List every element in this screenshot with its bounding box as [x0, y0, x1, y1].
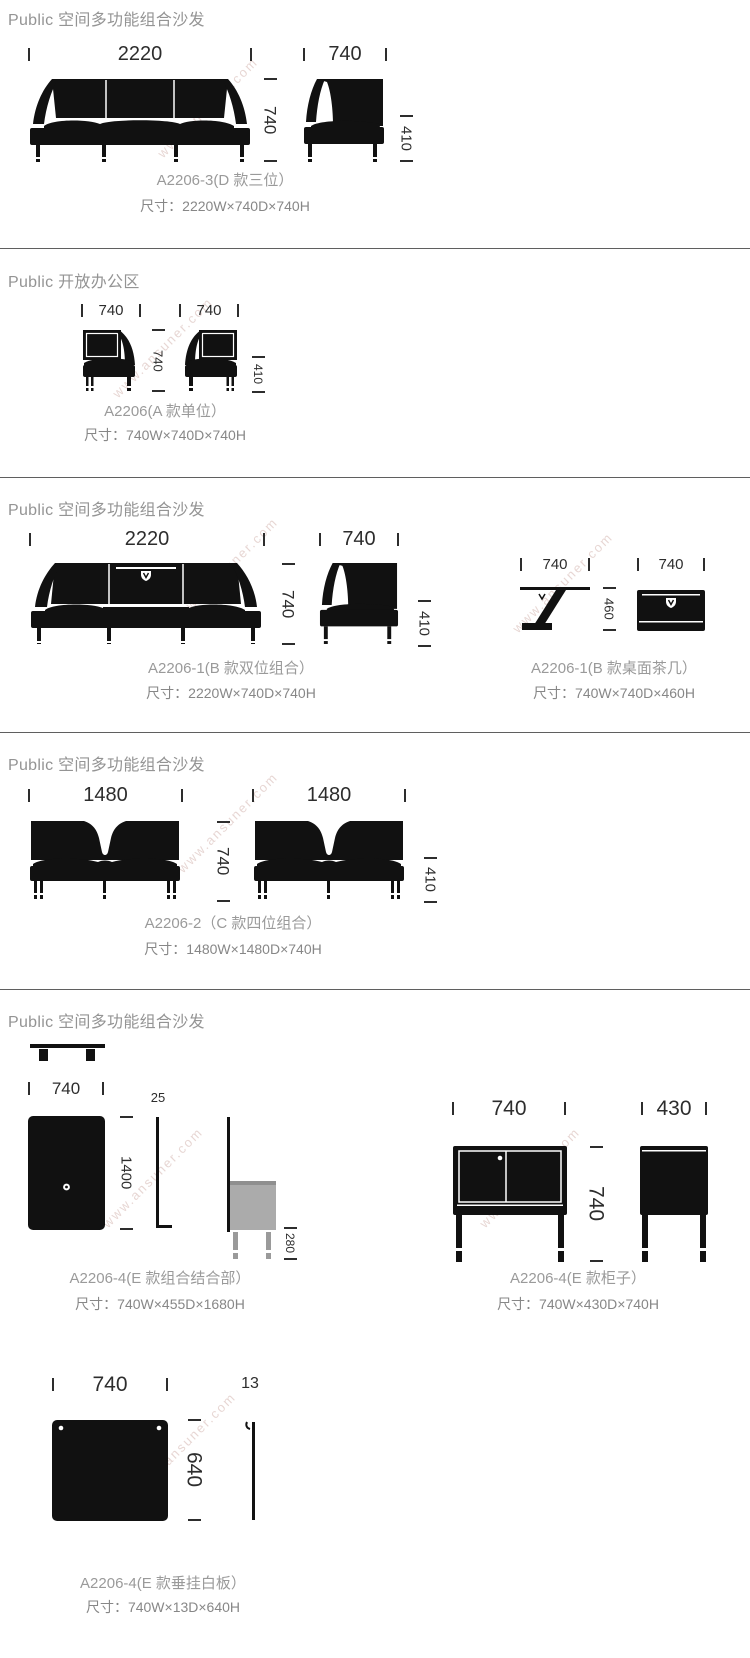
- dim-value: 740: [338, 529, 379, 549]
- dim-value: 740: [94, 303, 127, 318]
- dim-tick: [264, 160, 277, 162]
- product-caption: A2206-3(D 款三位）: [65, 169, 385, 190]
- dim-table-front-width: 740: [637, 557, 705, 572]
- product-size: 尺寸：740W×455D×1680H: [0, 1294, 320, 1314]
- cabinet-front-view-drawing: [453, 1146, 567, 1263]
- sofa-side-view-drawing: [303, 78, 385, 162]
- dim-side-width: 740: [303, 44, 387, 64]
- dim-tick: [250, 48, 252, 61]
- dim-value: 2220: [121, 529, 174, 549]
- dim-tick: [284, 1258, 297, 1260]
- dim-value: 740: [88, 1374, 131, 1395]
- dim-front-width: 2220: [28, 44, 252, 64]
- dim-right-width: 1480: [252, 785, 406, 805]
- dim-height: 740: [280, 563, 296, 645]
- dim-seat-height: 410: [398, 115, 414, 162]
- dim-value: 2220: [114, 44, 167, 64]
- product-size: 尺寸：740W×740D×740H: [5, 425, 325, 445]
- section-divider: [0, 989, 750, 990]
- dim-board-thickness: 13: [230, 1376, 270, 1392]
- dim-tick: [385, 48, 387, 61]
- dim-value: 410: [423, 864, 438, 895]
- dim-table-height: 460: [601, 587, 617, 631]
- dim-tick: [319, 533, 321, 546]
- dim-value: 460: [603, 595, 616, 623]
- dim-value: 740: [324, 44, 365, 64]
- dim-value: 740: [48, 1080, 84, 1097]
- table-side-view-drawing: [520, 587, 590, 631]
- product-size: 尺寸：1480W×1480D×740H: [73, 939, 393, 959]
- sofa-three-seat-front-drawing: [28, 78, 252, 162]
- dim-tick: [263, 533, 265, 546]
- panel-front-view-drawing: [28, 1116, 105, 1230]
- product-caption: A2206-4(E 款垂挂白板）: [3, 1572, 323, 1593]
- product-size: 尺寸：2220W×740D×740H: [71, 683, 391, 703]
- dim-value: 740: [280, 587, 297, 621]
- dim-value: 740: [262, 103, 279, 137]
- dim-tick: [217, 900, 230, 902]
- dim-tick: [404, 789, 406, 802]
- dim-seat-height: 410: [416, 600, 432, 647]
- dim-tick: [102, 1082, 104, 1095]
- dim-tick: [166, 1378, 168, 1391]
- dim-tick: [282, 563, 295, 565]
- dim-side-width: 740: [319, 529, 399, 549]
- dim-board-width: 740: [52, 1374, 168, 1395]
- product-caption: A2206-1(B 款桌面茶几）: [454, 657, 750, 678]
- dim-seat-height: 410: [422, 857, 438, 903]
- dim-panel-height: 1400: [118, 1116, 134, 1230]
- dim-value: 740: [487, 1098, 530, 1119]
- dim-tick: [397, 533, 399, 546]
- combo-side-view-drawing: [227, 1117, 277, 1260]
- section-header: Public 空间多功能组合沙发: [8, 6, 205, 30]
- dim-panel-thickness: 25: [146, 1091, 170, 1104]
- dim-front-width: 2220: [29, 529, 265, 549]
- dim-tick: [188, 1519, 201, 1521]
- dim-tick: [252, 391, 265, 393]
- dim-value: 640: [184, 1449, 205, 1490]
- dim-tick: [81, 304, 83, 317]
- dim-value: 1480: [79, 785, 132, 805]
- sofa-side-view-drawing: [319, 562, 399, 644]
- dim-tick: [284, 1227, 297, 1229]
- section-header: Public 空间多功能组合沙发: [8, 751, 205, 775]
- dim-seat-height: 410: [250, 356, 266, 393]
- dim-tick: [400, 115, 413, 117]
- dim-tick: [603, 629, 616, 631]
- dim-value: 740: [654, 557, 687, 572]
- product-size: 尺寸：740W×13D×640H: [3, 1597, 323, 1617]
- section-header: Public 开放办公区: [8, 268, 140, 292]
- dim-left-width: 1480: [28, 785, 183, 805]
- dim-value: 740: [192, 303, 225, 318]
- dim-tick: [418, 600, 431, 602]
- dim-value: 740: [538, 557, 571, 572]
- dim-tick: [29, 533, 31, 546]
- spec-sheet-page: www.ansuner.com www.ansuner.com www.ansu…: [0, 0, 750, 1658]
- watermark-text: www.ansuner.com: [100, 1124, 206, 1230]
- dim-cabinet-height: 740: [588, 1146, 604, 1262]
- product-caption: A2206(A 款单位）: [5, 400, 325, 421]
- dim-tick: [603, 587, 616, 589]
- dim-tick: [188, 1419, 201, 1421]
- whiteboard-front-view-drawing: [52, 1420, 168, 1521]
- whiteboard-side-view-drawing: [242, 1420, 258, 1521]
- dim-tick: [418, 645, 431, 647]
- dim-tick: [264, 78, 277, 80]
- dim-tick: [252, 356, 265, 358]
- section-header: Public 空间多功能组合沙发: [8, 1008, 205, 1032]
- dim-value: 410: [399, 123, 414, 154]
- section-header: Public 空间多功能组合沙发: [8, 496, 205, 520]
- dim-board-height: 640: [186, 1419, 202, 1521]
- dim-tick: [564, 1102, 566, 1115]
- dim-tick: [590, 1260, 603, 1262]
- sofa-duo-table-front-drawing: [29, 562, 263, 644]
- dim-value: 430: [652, 1098, 695, 1119]
- dim-left-width: 740: [81, 303, 141, 318]
- chair-left-drawing: [81, 329, 141, 392]
- dim-tick: [179, 304, 181, 317]
- dim-panel-width: 740: [28, 1080, 104, 1097]
- dim-tick: [590, 1146, 603, 1148]
- dim-tick: [120, 1228, 133, 1230]
- product-caption: A2206-4(E 款组合结合部）: [0, 1267, 320, 1288]
- dim-height: 740: [215, 821, 231, 902]
- cabinet-side-view-drawing: [640, 1146, 708, 1263]
- dim-tick: [424, 901, 437, 903]
- dim-value: 410: [252, 361, 264, 387]
- dim-tick: [28, 1082, 30, 1095]
- dim-tick: [588, 558, 590, 571]
- dim-value: 410: [417, 608, 432, 639]
- product-caption: A2206-1(B 款双位组合）: [71, 657, 391, 678]
- section-divider: [0, 248, 750, 249]
- dim-tick: [28, 789, 30, 802]
- dim-tick: [424, 857, 437, 859]
- table-front-view-drawing: [637, 590, 705, 631]
- dim-tick: [641, 1102, 643, 1115]
- dim-tick: [252, 789, 254, 802]
- dim-value: 740: [152, 347, 165, 375]
- dim-value: 280: [284, 1230, 296, 1256]
- section-divider: [0, 477, 750, 478]
- dim-tick: [705, 1102, 707, 1115]
- dim-tick: [52, 1378, 54, 1391]
- dim-tick: [28, 48, 30, 61]
- dim-tick: [637, 558, 639, 571]
- dim-tick: [520, 558, 522, 571]
- dim-tick: [400, 160, 413, 162]
- sofa-pair-right-drawing: [252, 820, 406, 901]
- dim-tick: [139, 304, 141, 317]
- dim-tick: [303, 48, 305, 61]
- dim-cabinet-front-width: 740: [452, 1098, 566, 1119]
- dim-tick: [217, 821, 230, 823]
- dim-tick: [452, 1102, 454, 1115]
- dim-tick: [152, 390, 165, 392]
- dim-table-side-width: 740: [520, 557, 590, 572]
- section-divider: [0, 732, 750, 733]
- dim-right-width: 740: [179, 303, 239, 318]
- dim-tick: [237, 304, 239, 317]
- dim-tick: [120, 1116, 133, 1118]
- sofa-pair-left-drawing: [28, 820, 182, 901]
- dim-box-height: 280: [282, 1227, 298, 1260]
- dim-tick: [152, 329, 165, 331]
- dim-value: 740: [215, 844, 232, 878]
- dim-value: 740: [586, 1183, 607, 1224]
- dim-height: 740: [150, 329, 166, 392]
- chair-right-drawing: [179, 329, 239, 392]
- product-caption: A2206-2（C 款四位组合）: [73, 912, 393, 933]
- product-size: 尺寸：740W×740D×460H: [454, 683, 750, 703]
- panel-side-view-drawing: [156, 1117, 174, 1230]
- dim-height: 740: [262, 78, 278, 162]
- dim-tick: [282, 643, 295, 645]
- dim-tick: [181, 789, 183, 802]
- product-size: 尺寸：2220W×740D×740H: [65, 196, 385, 216]
- dim-cabinet-side-width: 430: [641, 1098, 707, 1119]
- dim-tick: [703, 558, 705, 571]
- product-size: 尺寸：740W×430D×740H: [418, 1294, 738, 1314]
- product-caption: A2206-4(E 款柜子）: [418, 1267, 738, 1288]
- dim-value: 1400: [119, 1153, 134, 1192]
- bench-top-view-drawing: [30, 1044, 105, 1062]
- dim-value: 1480: [303, 785, 356, 805]
